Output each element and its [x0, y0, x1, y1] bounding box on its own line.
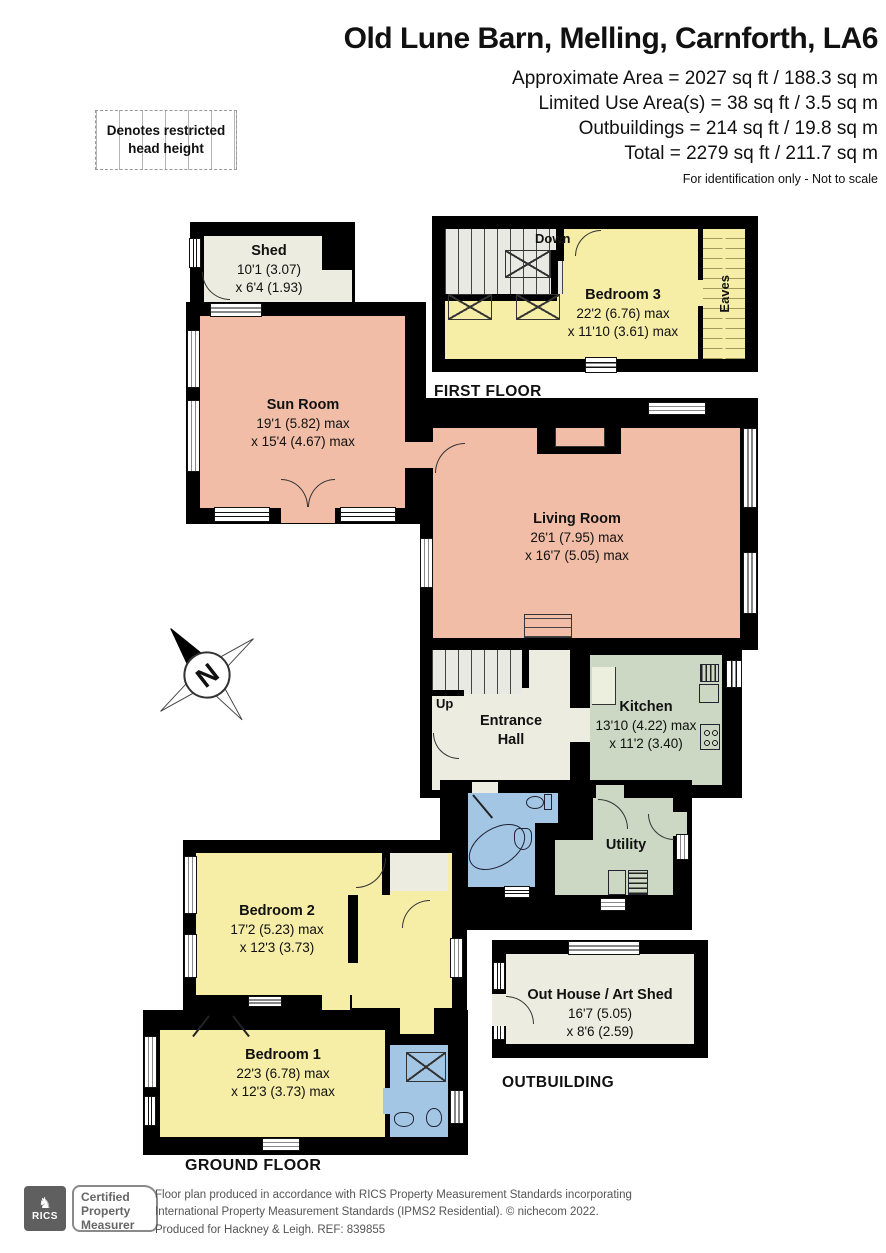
- porch-floor: [390, 853, 448, 891]
- legend-text: Denotes restricted head height: [96, 122, 236, 157]
- room-name: Kitchen: [576, 698, 716, 717]
- room-dimension: x 8'6 (2.59): [508, 1023, 692, 1041]
- certified-property-measurer-badge: Certified Property Measurer: [72, 1185, 158, 1232]
- approximate-area: Approximate Area = 2027 sq ft / 188.3 sq…: [238, 66, 878, 91]
- appliance: [628, 870, 648, 895]
- limited-use-area: Limited Use Area(s) = 38 sq ft / 3.5 sq …: [238, 91, 878, 116]
- room-dimension: 19'1 (5.82) max: [207, 415, 399, 433]
- window: [189, 238, 201, 268]
- window: [340, 507, 396, 522]
- toilet-cistern: [544, 794, 552, 810]
- toilet: [426, 1108, 442, 1127]
- room-dimension: x 11'2 (3.40): [576, 735, 716, 753]
- window: [187, 330, 200, 388]
- window: [144, 1036, 157, 1088]
- footer-disclaimer: Floor plan produced in accordance with R…: [155, 1187, 755, 1239]
- door-opening: [492, 994, 506, 1026]
- total-area: Total = 2279 sq ft / 211.7 sq m: [238, 141, 878, 166]
- staircase-up: [432, 650, 522, 694]
- door-opening: [400, 1008, 434, 1034]
- stair-direction-label: Up: [436, 696, 453, 711]
- restricted-head-height-legend: Denotes restricted head height: [95, 110, 237, 170]
- window: [676, 834, 689, 860]
- room-dimension: 10'1 (3.07): [213, 261, 325, 279]
- room-label-bedroom3: Bedroom 3 22'2 (6.76) max x 11'10 (3.61)…: [525, 286, 721, 341]
- room-dimension: 22'3 (6.78) max: [183, 1065, 383, 1083]
- rics-logo-text: RICS: [32, 1211, 58, 1222]
- window: [600, 898, 626, 911]
- room-label-entrance-hall: Entrance Hall: [461, 712, 561, 750]
- rooflight: [505, 250, 551, 278]
- header: Old Lune Barn, Melling, Carnforth, LA6 A…: [238, 22, 878, 186]
- page-title: Old Lune Barn, Melling, Carnforth, LA6: [238, 22, 878, 56]
- badge-line: Measurer: [81, 1218, 149, 1232]
- window: [648, 402, 706, 415]
- window: [493, 962, 505, 990]
- room-name: Entrance: [461, 712, 561, 731]
- room-dimension: x 16'7 (5.05) max: [477, 547, 677, 565]
- footer-line: Produced for Hackney & Leigh. REF: 83985…: [155, 1222, 755, 1239]
- room-label-sun-room: Sun Room 19'1 (5.82) max x 15'4 (4.67) m…: [207, 396, 399, 451]
- room-dimension: 13'10 (4.22) max: [576, 717, 716, 735]
- utility-sink: [608, 870, 626, 895]
- window: [144, 1096, 156, 1126]
- room-name: Hall: [461, 731, 561, 750]
- window: [450, 938, 463, 978]
- window: [568, 941, 640, 955]
- room-label-living-room: Living Room 26'1 (7.95) max x 16'7 (5.05…: [477, 510, 677, 565]
- disclaimer: For identification only - Not to scale: [238, 172, 878, 186]
- window: [210, 303, 262, 317]
- window: [248, 996, 282, 1007]
- compass-rose: N: [148, 612, 266, 738]
- room-dimension: 22'2 (6.76) max: [525, 305, 721, 323]
- window: [187, 400, 200, 472]
- window: [726, 660, 742, 688]
- window: [504, 886, 530, 898]
- badge-line: Certified: [81, 1190, 149, 1204]
- toilet: [526, 796, 544, 809]
- outbuilding-label: OUTBUILDING: [502, 1074, 614, 1092]
- room-dimension: 16'7 (5.05): [508, 1005, 692, 1023]
- door-opening: [596, 785, 624, 799]
- room-name: Sun Room: [207, 396, 399, 415]
- room-label-shed: Shed 10'1 (3.07) x 6'4 (1.93): [213, 242, 325, 297]
- fireplace: [555, 428, 605, 447]
- rooflight: [448, 294, 492, 320]
- room-label-utility: Utility: [594, 836, 658, 855]
- room-dimension: x 6'4 (1.93): [213, 279, 325, 297]
- window: [743, 552, 757, 614]
- room-label-bedroom2: Bedroom 2 17'2 (5.23) max x 12'3 (3.73): [181, 902, 373, 957]
- draining-board: [700, 664, 719, 682]
- shower-tray: [406, 1052, 446, 1082]
- window: [585, 357, 617, 373]
- room-dimension: 17'2 (5.23) max: [181, 921, 373, 939]
- footer-line: International Property Measurement Stand…: [155, 1204, 755, 1221]
- badge-line: Property: [81, 1204, 149, 1218]
- room-name: Shed: [213, 242, 325, 261]
- footer-line: Floor plan produced in accordance with R…: [155, 1187, 755, 1204]
- room-label-bedroom1: Bedroom 1 22'3 (6.78) max x 12'3 (3.73) …: [183, 1046, 383, 1101]
- room-label-kitchen: Kitchen 13'10 (4.22) max x 11'2 (3.40): [576, 698, 716, 753]
- rics-lion-icon: ♞: [38, 1196, 51, 1211]
- rics-logo: ♞ RICS: [24, 1186, 66, 1231]
- window: [262, 1138, 300, 1151]
- room-dimension: x 15'4 (4.67) max: [207, 433, 399, 451]
- outbuildings-area: Outbuildings = 214 sq ft / 19.8 sq m: [238, 116, 878, 141]
- window: [420, 538, 433, 588]
- floor-plan-page: Old Lune Barn, Melling, Carnforth, LA6 A…: [0, 0, 886, 1253]
- staircase-lower: [524, 614, 572, 638]
- room-dimension: x 12'3 (3.73) max: [183, 1083, 383, 1101]
- room-name: Bedroom 3: [525, 286, 721, 305]
- room-name: Bedroom 1: [183, 1046, 383, 1065]
- wall: [522, 650, 529, 688]
- french-door-opening: [281, 506, 335, 523]
- sink: [394, 1112, 414, 1127]
- window: [450, 1090, 464, 1124]
- room-name: Out House / Art Shed: [508, 986, 692, 1005]
- window: [214, 507, 270, 522]
- room-name: Bedroom 2: [181, 902, 373, 921]
- stair-direction-label: Down: [535, 231, 570, 246]
- door-opening: [383, 1088, 390, 1114]
- window: [743, 428, 757, 508]
- room-name: Utility: [594, 836, 658, 855]
- room-dimension: x 11'10 (3.61) max: [525, 323, 721, 341]
- ground-floor-label: GROUND FLOOR: [185, 1157, 321, 1175]
- door-opening: [673, 812, 687, 836]
- room-name: Living Room: [477, 510, 677, 529]
- door-opening: [405, 442, 435, 468]
- room-dimension: x 12'3 (3.73): [181, 939, 373, 957]
- room-dimension: 26'1 (7.95) max: [477, 529, 677, 547]
- room-label-outhouse: Out House / Art Shed 16'7 (5.05) x 8'6 (…: [508, 986, 692, 1041]
